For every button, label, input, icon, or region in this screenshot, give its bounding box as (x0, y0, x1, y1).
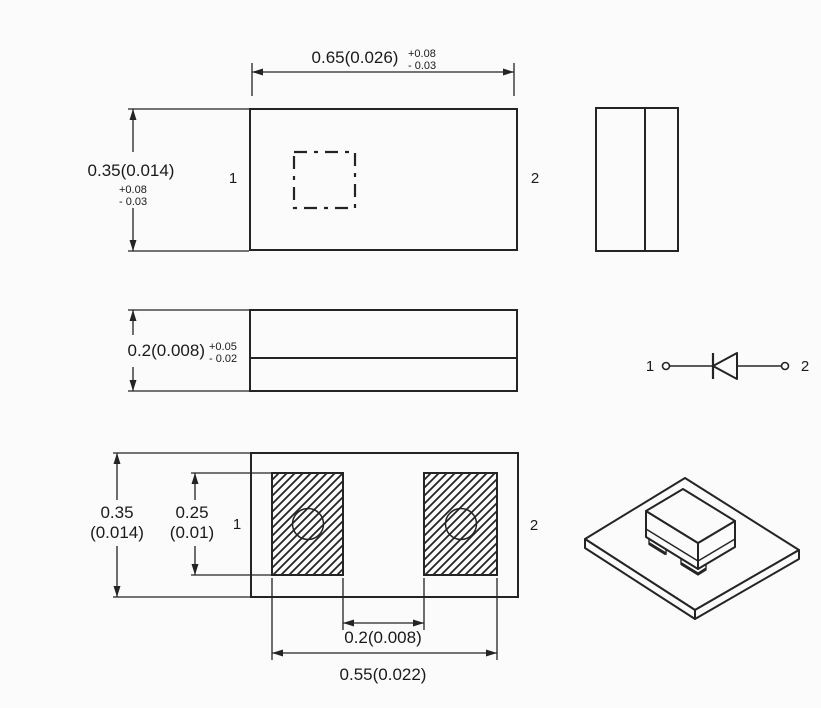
thickness-dim-tol-minus: - 0.02 (209, 353, 237, 365)
pad-span-dimension: 0.55(0.022) (272, 650, 497, 685)
terminal-circle-1 (663, 363, 670, 370)
pad-height-dimension: 0.25 (0.01) (170, 473, 272, 575)
end-view-outline (596, 108, 678, 251)
top-view-pin1-label: 1 (229, 170, 237, 187)
height-dim-tol-minus: - 0.03 (119, 196, 147, 208)
top-height-dimension: 0.35(0.014) +0.08 - 0.03 (88, 109, 249, 251)
extension-lines (252, 63, 514, 96)
schematic-symbol: 1 2 (646, 353, 809, 379)
thickness-dim-tol-plus: +0.05 (209, 341, 237, 353)
top-view-pin2-label: 2 (531, 170, 539, 187)
diode-triangle-icon (713, 353, 737, 379)
solder-pad-2 (424, 473, 497, 575)
side-view-outline (250, 310, 517, 391)
package-dimension-drawing: 0.65(0.026) +0.08 - 0.03 0.35(0.014) +0.… (0, 0, 821, 708)
arrowhead-bottom (192, 564, 199, 575)
overall-height-dim-inches: (0.014) (90, 523, 144, 542)
arrowhead-top (192, 473, 199, 484)
top-view: 0.65(0.026) +0.08 - 0.03 0.35(0.014) +0.… (88, 48, 540, 251)
height-dim-tol-plus: +0.08 (119, 184, 147, 196)
bottom-view-pin1-label: 1 (233, 516, 241, 533)
arrowhead-right (486, 650, 497, 657)
pad-gap-dim-text: 0.2(0.008) (344, 628, 422, 647)
arrowhead-top (130, 310, 137, 321)
thickness-dim-text: 0.2(0.008) (128, 341, 206, 360)
terminal-circle-2 (782, 363, 789, 370)
isometric-view (585, 478, 799, 619)
schematic-pin2-label: 2 (801, 358, 809, 375)
pad-gap-dimension: 0.2(0.008) (272, 578, 497, 660)
end-view (596, 108, 678, 251)
width-dim-tol-minus: - 0.03 (408, 60, 436, 72)
pad-height-dim-inches: (0.01) (170, 523, 214, 542)
pad-span-dim-text: 0.55(0.022) (340, 665, 427, 684)
arrowhead-left (252, 69, 263, 76)
arrowhead-bottom (130, 240, 137, 251)
schematic-pin1-label: 1 (646, 358, 654, 375)
width-dim-text: 0.65(0.026) (312, 48, 399, 67)
width-dim-tol-plus: +0.08 (408, 48, 436, 60)
arrowhead-bottom (130, 380, 137, 391)
die-hidden-outline (294, 152, 355, 208)
bottom-view: 0.35 (0.014) 0.25 (0.01) 0.2(0.008) 0.55… (90, 453, 538, 684)
arrowhead-left (343, 620, 354, 627)
solder-pad-1 (272, 473, 343, 575)
top-width-dimension: 0.65(0.026) +0.08 - 0.03 (252, 48, 514, 96)
arrowhead-right (413, 620, 424, 627)
top-view-package-outline (250, 109, 517, 250)
arrowhead-top (114, 453, 121, 464)
arrowhead-left (272, 650, 283, 657)
technical-drawing-canvas: 0.65(0.026) +0.08 - 0.03 0.35(0.014) +0.… (0, 0, 821, 708)
extension-lines (272, 578, 497, 660)
overall-height-dim-value: 0.35 (100, 503, 133, 522)
arrowhead-right (503, 69, 514, 76)
bottom-view-pin2-label: 2 (530, 517, 538, 534)
pad-height-dim-value: 0.25 (175, 503, 208, 522)
arrowhead-bottom (114, 586, 121, 597)
arrowhead-top (130, 109, 137, 120)
side-view: 0.2(0.008) +0.05 - 0.02 (128, 310, 518, 391)
thickness-dimension: 0.2(0.008) +0.05 - 0.02 (128, 310, 250, 391)
height-dim-text: 0.35(0.014) (88, 161, 175, 180)
